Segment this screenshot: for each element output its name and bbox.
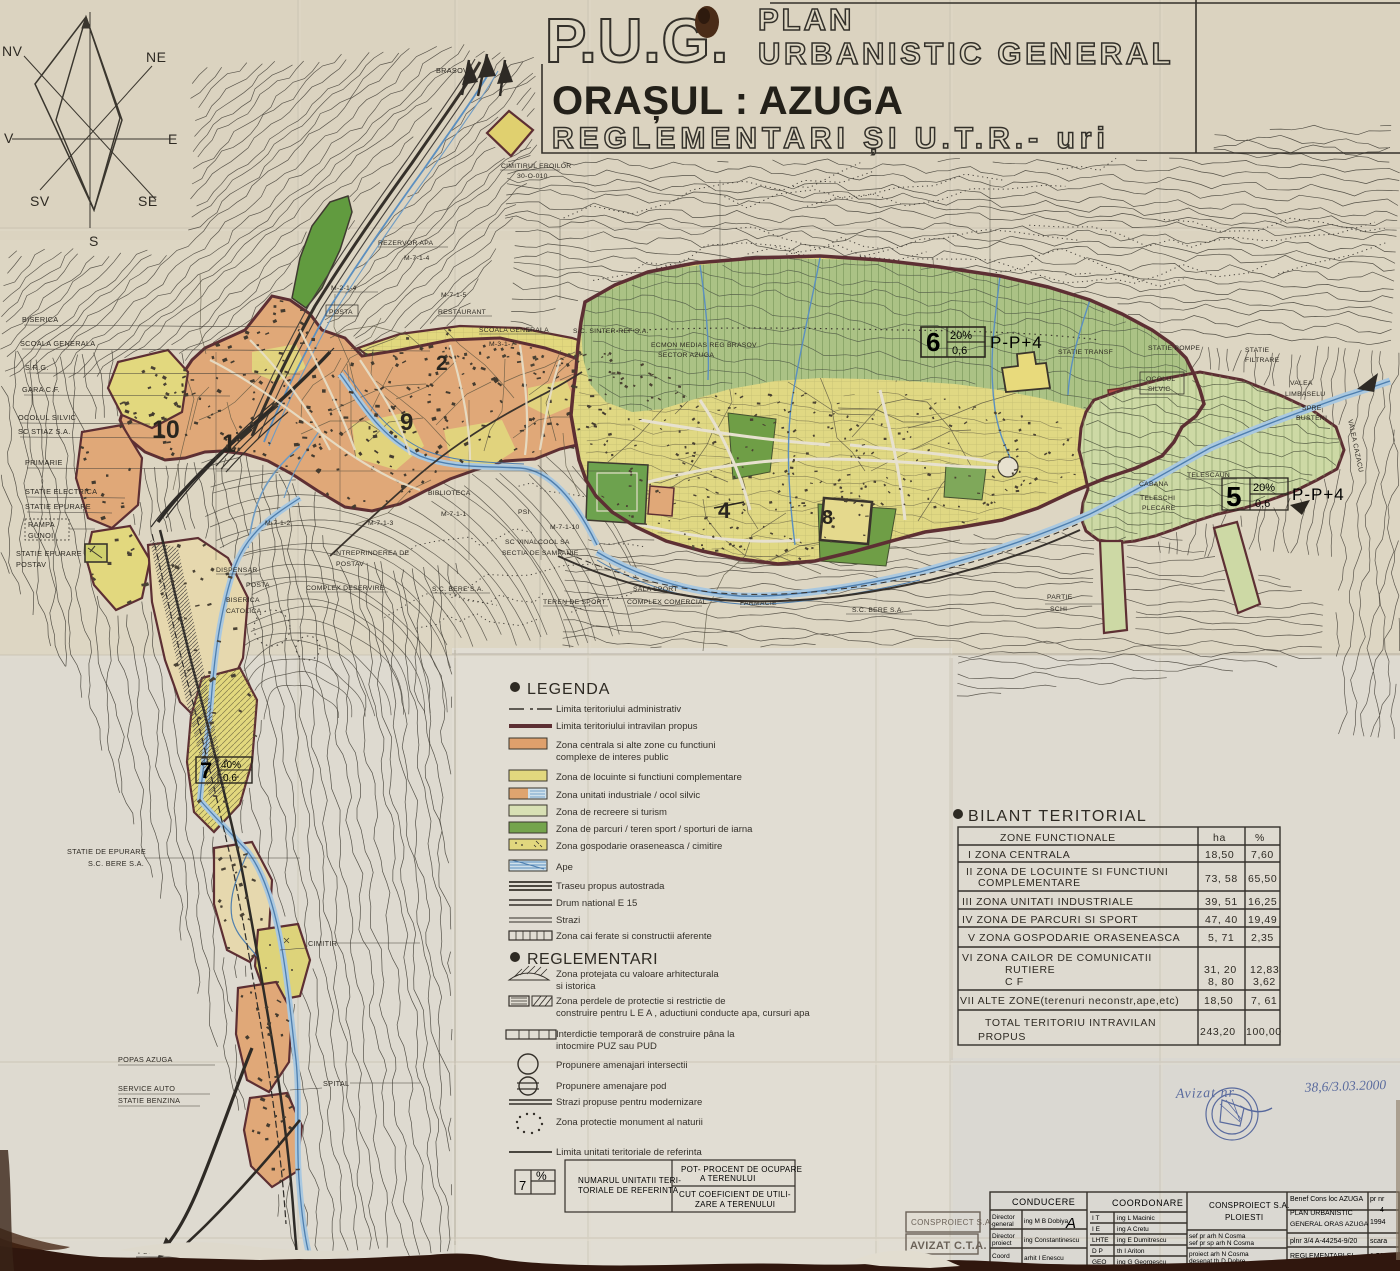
svg-text:M-7-1-10: M-7-1-10 xyxy=(550,524,580,531)
svg-text:ORAȘUL : AZUGA: ORAȘUL : AZUGA xyxy=(552,79,903,123)
svg-text:SILVIC: SILVIC xyxy=(1148,386,1171,393)
svg-text:20%: 20% xyxy=(950,330,972,342)
svg-text:47, 40: 47, 40 xyxy=(1205,914,1238,926)
svg-text:10: 10 xyxy=(152,416,180,444)
svg-text:V: V xyxy=(4,130,14,146)
svg-text:BUSTENI: BUSTENI xyxy=(1296,415,1327,422)
svg-text:SV: SV xyxy=(30,193,50,209)
svg-text:PLECARE: PLECARE xyxy=(1142,505,1176,512)
svg-text:COMPLEX COMERCIAL: COMPLEX COMERCIAL xyxy=(627,599,707,606)
svg-text:I ZONA CENTRALA: I ZONA CENTRALA xyxy=(968,849,1070,861)
svg-text:M-3-1-7: M-3-1-7 xyxy=(489,341,515,348)
svg-text:STATIE POMPE: STATIE POMPE xyxy=(1148,345,1200,352)
svg-text:intocmire PUZ sau PUD: intocmire PUZ sau PUD xyxy=(556,1041,657,1052)
svg-text:2,35: 2,35 xyxy=(1251,932,1274,944)
svg-text:ing L Macinic: ing L Macinic xyxy=(1117,1215,1155,1222)
svg-text:pr nr: pr nr xyxy=(1370,1196,1385,1203)
svg-text:M-7-1-4: M-7-1-4 xyxy=(404,255,430,262)
svg-text:BIBLIOTECA: BIBLIOTECA xyxy=(428,490,471,497)
svg-text:SCOALA GENERALA: SCOALA GENERALA xyxy=(479,327,549,334)
svg-text:NUMARUL UNITATII TERI-: NUMARUL UNITATII TERI- xyxy=(578,1176,681,1185)
svg-text:Zona unitati industriale / oco: Zona unitati industriale / ocol silvic xyxy=(556,790,700,801)
svg-text:COMPLEMENTARE: COMPLEMENTARE xyxy=(978,877,1081,889)
svg-text:4: 4 xyxy=(1380,1207,1384,1214)
svg-text:PRIMARIE: PRIMARIE xyxy=(25,458,63,467)
svg-text:ZONE FUNCTIONALE: ZONE FUNCTIONALE xyxy=(1000,832,1116,844)
svg-text:Zona de locuinte si functiuni: Zona de locuinte si functiuni complement… xyxy=(556,772,742,783)
svg-text:construire pentru L E A , aduc: construire pentru L E A , aductiuni cond… xyxy=(556,1008,810,1019)
svg-text:PLAN: PLAN xyxy=(758,2,854,37)
svg-text:1: 1 xyxy=(222,430,236,458)
svg-text:31, 20: 31, 20 xyxy=(1204,964,1237,976)
svg-text:Limita teritoriului administra: Limita teritoriului administrativ xyxy=(556,704,681,715)
svg-text:Director: Director xyxy=(992,1214,1016,1221)
svg-text:POPAS AZUGA: POPAS AZUGA xyxy=(118,1055,173,1064)
svg-text:LEGENDA: LEGENDA xyxy=(527,681,610,698)
svg-text:Avizat nr: Avizat nr xyxy=(1175,1085,1236,1102)
svg-text:POSTAV: POSTAV xyxy=(16,560,46,569)
svg-text:S.C. BERE S.A.: S.C. BERE S.A. xyxy=(432,586,484,593)
svg-text:V ZONA GOSPODARIE ORASENEASCA: V ZONA GOSPODARIE ORASENEASCA xyxy=(968,932,1180,944)
svg-text:COORDONARE: COORDONARE xyxy=(1112,1198,1184,1208)
svg-text:IV ZONA DE PARCURI SI SPORT: IV ZONA DE PARCURI SI SPORT xyxy=(962,914,1138,926)
svg-text:7: 7 xyxy=(519,1178,526,1193)
svg-text:Zona cai ferate si constructii: Zona cai ferate si constructii aferente xyxy=(556,931,712,942)
svg-text:TORIALE DE REFERINTA: TORIALE DE REFERINTA xyxy=(578,1186,679,1195)
svg-text:Zona de parcuri / teren sport: Zona de parcuri / teren sport / sporturi… xyxy=(556,824,753,835)
svg-text:ing A Cretu: ing A Cretu xyxy=(1117,1226,1149,1233)
svg-text:ZARE A TERENULUI: ZARE A TERENULUI xyxy=(695,1200,775,1209)
svg-text:NE: NE xyxy=(146,49,166,65)
svg-text:18,50: 18,50 xyxy=(1204,995,1233,1007)
svg-text:SE: SE xyxy=(138,193,158,209)
svg-text:CONDUCERE: CONDUCERE xyxy=(1012,1197,1075,1207)
svg-text:20%: 20% xyxy=(1253,482,1275,494)
svg-text:C F: C F xyxy=(1005,976,1024,988)
svg-text:12,83: 12,83 xyxy=(1250,964,1279,976)
svg-text:general: general xyxy=(992,1221,1014,1228)
svg-text:BISERICA: BISERICA xyxy=(226,597,260,604)
svg-text:65,50: 65,50 xyxy=(1248,873,1277,885)
svg-text:16,25: 16,25 xyxy=(1248,896,1277,908)
svg-text:Propunere amenajari intersecti: Propunere amenajari intersectii xyxy=(556,1060,687,1071)
svg-text:M-7-1-5: M-7-1-5 xyxy=(441,292,467,299)
svg-text:PLOIESTI: PLOIESTI xyxy=(1225,1213,1263,1222)
svg-text:ing Constantinescu: ing Constantinescu xyxy=(1024,1237,1080,1244)
svg-text:III ZONA UNITATI INDUSTRIALE: III ZONA UNITATI INDUSTRIALE xyxy=(962,896,1134,908)
svg-text:Coord: Coord xyxy=(992,1253,1010,1260)
svg-text:D P: D P xyxy=(1092,1248,1103,1255)
svg-text:8: 8 xyxy=(822,507,833,529)
svg-text:LIMBASELU: LIMBASELU xyxy=(1285,391,1325,398)
svg-text:STATIE: STATIE xyxy=(1245,347,1269,354)
svg-text:GARA C.F.: GARA C.F. xyxy=(22,385,60,394)
svg-text:A: A xyxy=(1065,1215,1076,1232)
svg-text:GUNOI: GUNOI xyxy=(28,531,53,540)
svg-text:VII ALTE ZONE(terenuri necons: VII ALTE ZONE(terenuri neconstr,ape,etc) xyxy=(960,995,1179,1007)
svg-text:40%: 40% xyxy=(221,760,241,771)
svg-text:100,00: 100,00 xyxy=(1246,1026,1282,1038)
svg-text:ECMON MEDIAS REG BRASOV: ECMON MEDIAS REG BRASOV xyxy=(651,342,757,349)
svg-text:7, 61: 7, 61 xyxy=(1251,995,1277,1007)
svg-text:RUTIERE: RUTIERE xyxy=(1005,964,1055,976)
svg-text:CUT COEFICIENT DE UTILI-: CUT COEFICIENT DE UTILI- xyxy=(679,1190,791,1199)
svg-text:Zona protectie monument al nat: Zona protectie monument al naturii xyxy=(556,1117,703,1128)
svg-text:%: % xyxy=(1255,832,1265,844)
svg-text:proiect arh N Cosma: proiect arh N Cosma xyxy=(1189,1251,1249,1258)
svg-text:Propunere amenajare pod: Propunere amenajare pod xyxy=(556,1081,666,1092)
svg-text:SALA SPORT: SALA SPORT xyxy=(633,586,678,593)
svg-text:SERVICE AUTO: SERVICE AUTO xyxy=(118,1084,175,1093)
svg-text:Ape: Ape xyxy=(556,862,573,873)
svg-text:39, 51: 39, 51 xyxy=(1205,896,1238,908)
svg-text:arhit I Enescu: arhit I Enescu xyxy=(1024,1255,1064,1262)
svg-text:CIMITIR: CIMITIR xyxy=(308,939,337,948)
svg-text:STATIE DE EPURARE: STATIE DE EPURARE xyxy=(67,847,146,856)
svg-text:0,6: 0,6 xyxy=(1255,498,1270,510)
svg-text:Zona gospodarie oraseneasca /: Zona gospodarie oraseneasca / cimitire xyxy=(556,841,722,852)
svg-text:A TERENULUI: A TERENULUI xyxy=(700,1174,756,1183)
svg-text:RESTAURANT: RESTAURANT xyxy=(438,309,486,316)
svg-text:Director: Director xyxy=(992,1233,1016,1240)
svg-text:GENERAL ORAS AZUGA: GENERAL ORAS AZUGA xyxy=(1290,1221,1369,1228)
svg-text:S.R.G.: S.R.G. xyxy=(25,363,49,372)
svg-text:5, 71: 5, 71 xyxy=(1208,932,1234,944)
svg-text:3,62: 3,62 xyxy=(1253,976,1276,988)
svg-text:proiect: proiect xyxy=(992,1240,1012,1247)
svg-text:PSI: PSI xyxy=(518,509,530,516)
svg-text:ing E Dumitrescu: ing E Dumitrescu xyxy=(1117,1237,1167,1244)
svg-text:REGLEMENTARI: REGLEMENTARI xyxy=(527,951,658,968)
svg-text:6: 6 xyxy=(926,327,940,357)
svg-text:ing M B Dobiya: ing M B Dobiya xyxy=(1024,1218,1068,1225)
svg-text:th I Ariton: th I Ariton xyxy=(1117,1248,1145,1255)
svg-text:DISPENSAR: DISPENSAR xyxy=(216,567,258,574)
svg-text:REZERVOR APA: REZERVOR APA xyxy=(378,240,433,247)
svg-text:SC VINALCOOL SA: SC VINALCOOL SA xyxy=(505,539,570,546)
svg-text:PARTIE: PARTIE xyxy=(1047,594,1073,601)
svg-text:VI ZONA CAILOR DE COMUNICATII: VI ZONA CAILOR DE COMUNICATII xyxy=(962,952,1152,964)
svg-text:Limita teritoriului intravilan: Limita teritoriului intravilan propus xyxy=(556,721,698,732)
svg-text:complexe de interes public: complexe de interes public xyxy=(556,752,669,763)
svg-text:7,60: 7,60 xyxy=(1251,849,1274,861)
svg-text:POSTA: POSTA xyxy=(329,309,353,316)
svg-text:STATIE BENZINA: STATIE BENZINA xyxy=(118,1096,180,1105)
svg-text:PLAN URBANISTIC: PLAN URBANISTIC xyxy=(1290,1210,1353,1217)
svg-text:Interdictie temporară de const: Interdictie temporară de construire pâna… xyxy=(556,1029,735,1040)
svg-text:sef pr arh N Cosma: sef pr arh N Cosma xyxy=(1189,1233,1246,1240)
svg-text:0,6: 0,6 xyxy=(952,345,967,357)
svg-text:STATIE EPURARE: STATIE EPURARE xyxy=(25,502,91,511)
svg-text:Limita unitati teritoriale de: Limita unitati teritoriale de referinta xyxy=(556,1147,702,1158)
svg-text:P-P+4: P-P+4 xyxy=(990,333,1043,352)
svg-text:Zona de recreere si turism: Zona de recreere si turism xyxy=(556,807,667,818)
svg-text:1994: 1994 xyxy=(1370,1219,1386,1226)
svg-text:I T: I T xyxy=(1092,1215,1099,1222)
svg-text:INTREPRINDEREA DE: INTREPRINDEREA DE xyxy=(334,550,409,557)
svg-text:STATIE TRANSF: STATIE TRANSF xyxy=(1058,349,1113,356)
svg-text:E: E xyxy=(168,131,178,147)
svg-text:POSTAV: POSTAV xyxy=(336,561,364,568)
svg-text:scara: scara xyxy=(1370,1238,1387,1245)
svg-text:SPRE: SPRE xyxy=(1302,405,1322,412)
svg-text:%: % xyxy=(536,1169,547,1183)
svg-text:si istorica: si istorica xyxy=(556,981,596,992)
svg-text:9: 9 xyxy=(400,409,413,436)
svg-text:REGLEMENTARI ȘI U.T.R.- uri: REGLEMENTARI ȘI U.T.R.- uri xyxy=(552,122,1110,155)
svg-text:I E: I E xyxy=(1092,1226,1101,1233)
svg-text:BRASOV: BRASOV xyxy=(436,66,468,75)
svg-text:38,6/3.03.2000: 38,6/3.03.2000 xyxy=(1303,1077,1386,1095)
svg-text:OCOLUL: OCOLUL xyxy=(1146,376,1175,383)
svg-text:LHTE: LHTE xyxy=(1092,1237,1109,1244)
svg-text:SECTIA DE SAMPANIE: SECTIA DE SAMPANIE xyxy=(502,550,579,557)
svg-text:M-7-1-2: M-7-1-2 xyxy=(265,520,291,527)
svg-text:4: 4 xyxy=(718,498,731,523)
svg-text:2: 2 xyxy=(436,352,448,375)
svg-text:S.C. BERE S.A.: S.C. BERE S.A. xyxy=(852,607,904,614)
svg-text:POT- PROCENT DE OCUPARE: POT- PROCENT DE OCUPARE xyxy=(681,1165,802,1174)
svg-text:73, 58: 73, 58 xyxy=(1205,873,1238,885)
svg-text:TOTAL TERITORIU INTRAVILAN: TOTAL TERITORIU INTRAVILAN xyxy=(985,1017,1156,1029)
svg-text:Zona protejata cu valoare arhi: Zona protejata cu valoare arhitecturala xyxy=(556,969,719,980)
svg-text:Strazi propuse pentru moderniz: Strazi propuse pentru modernizare xyxy=(556,1097,702,1108)
svg-text:S: S xyxy=(89,233,99,249)
svg-text:plnr 3/4 A-44254-9/20: plnr 3/4 A-44254-9/20 xyxy=(1290,1238,1357,1245)
svg-text:URBANISTIC GENERAL: URBANISTIC GENERAL xyxy=(758,36,1174,71)
svg-text:CONSPROIECT S.A.: CONSPROIECT S.A. xyxy=(1209,1201,1290,1210)
svg-text:5: 5 xyxy=(1226,481,1242,512)
svg-text:P-P+4: P-P+4 xyxy=(1292,485,1345,504)
svg-text:S.C. BERE S.A.: S.C. BERE S.A. xyxy=(88,859,144,868)
svg-text:RAMPA: RAMPA xyxy=(28,520,55,529)
svg-text:Zona perdele de protectie si r: Zona perdele de protectie si restrictie … xyxy=(556,996,726,1007)
svg-text:COMPLEX DESERVIRE: COMPLEX DESERVIRE xyxy=(306,585,385,592)
svg-text:Drum national E 15: Drum national E 15 xyxy=(556,898,637,909)
svg-text:STATIE ELECTRICA: STATIE ELECTRICA xyxy=(25,487,97,496)
svg-text:S.C. SINTER-REF S.A.: S.C. SINTER-REF S.A. xyxy=(573,328,649,335)
svg-text:FILTRARE: FILTRARE xyxy=(1245,357,1280,364)
svg-text:Zona centrala si alte zone cu: Zona centrala si alte zone cu functiuni xyxy=(556,740,715,751)
svg-text:STATIE EPURARE: STATIE EPURARE xyxy=(16,549,82,558)
svg-text:19,49: 19,49 xyxy=(1248,914,1277,926)
svg-text:8, 80: 8, 80 xyxy=(1208,976,1234,988)
svg-text:18,50: 18,50 xyxy=(1205,849,1234,861)
svg-text:SPITAL: SPITAL xyxy=(323,1079,349,1088)
svg-text:VALEA: VALEA xyxy=(1290,380,1313,387)
svg-text:CABANA: CABANA xyxy=(1139,481,1169,488)
svg-text:SC STIAZ S.A.: SC STIAZ S.A. xyxy=(18,427,71,436)
svg-text:0,6: 0,6 xyxy=(223,773,237,784)
svg-text:POSTA: POSTA xyxy=(246,582,270,589)
svg-text:FARMACIE: FARMACIE xyxy=(740,600,777,607)
svg-text:Strazi: Strazi xyxy=(556,915,580,926)
svg-text:sef pr sp arh N Cosma: sef pr sp arh N Cosma xyxy=(1189,1240,1254,1247)
svg-text:TELESCHI: TELESCHI xyxy=(1140,495,1175,502)
svg-text:243,20: 243,20 xyxy=(1200,1026,1236,1038)
svg-text:BISERICA: BISERICA xyxy=(22,315,58,324)
svg-text:Traseu propus autostrada: Traseu propus autostrada xyxy=(556,881,665,892)
svg-text:AVIZAT C.T.A.: AVIZAT C.T.A. xyxy=(910,1240,987,1252)
svg-text:SCHI: SCHI xyxy=(1050,606,1067,613)
svg-text:NV: NV xyxy=(2,43,23,59)
svg-text:7: 7 xyxy=(200,758,212,783)
svg-text:CATOLICA: CATOLICA xyxy=(226,608,262,615)
svg-text:PROPUS: PROPUS xyxy=(978,1031,1026,1043)
svg-text:Benef Cons loc AZUGA: Benef Cons loc AZUGA xyxy=(1290,1196,1363,1203)
svg-text:CIMITIRUL EROILOR: CIMITIRUL EROILOR xyxy=(501,163,571,170)
svg-text:M-7-1-1: M-7-1-1 xyxy=(441,511,467,518)
svg-text:TEREN DE SPORT: TEREN DE SPORT xyxy=(543,599,606,606)
svg-text:BILANT TERITORIAL: BILANT TERITORIAL xyxy=(968,808,1147,825)
svg-text:SCOALA GENERALA: SCOALA GENERALA xyxy=(20,339,95,348)
svg-text:30-O-010: 30-O-010 xyxy=(517,173,548,180)
svg-text:CONSPROIECT S.A.: CONSPROIECT S.A. xyxy=(911,1218,993,1227)
svg-text:M-7-1-3: M-7-1-3 xyxy=(368,520,394,527)
svg-text:SECTOR AZUGA: SECTOR AZUGA xyxy=(658,352,714,359)
svg-text:ha: ha xyxy=(1213,832,1226,844)
svg-text:OCOLUL SILVIC: OCOLUL SILVIC xyxy=(18,413,76,422)
svg-text:M-2-1-4: M-2-1-4 xyxy=(331,285,357,292)
